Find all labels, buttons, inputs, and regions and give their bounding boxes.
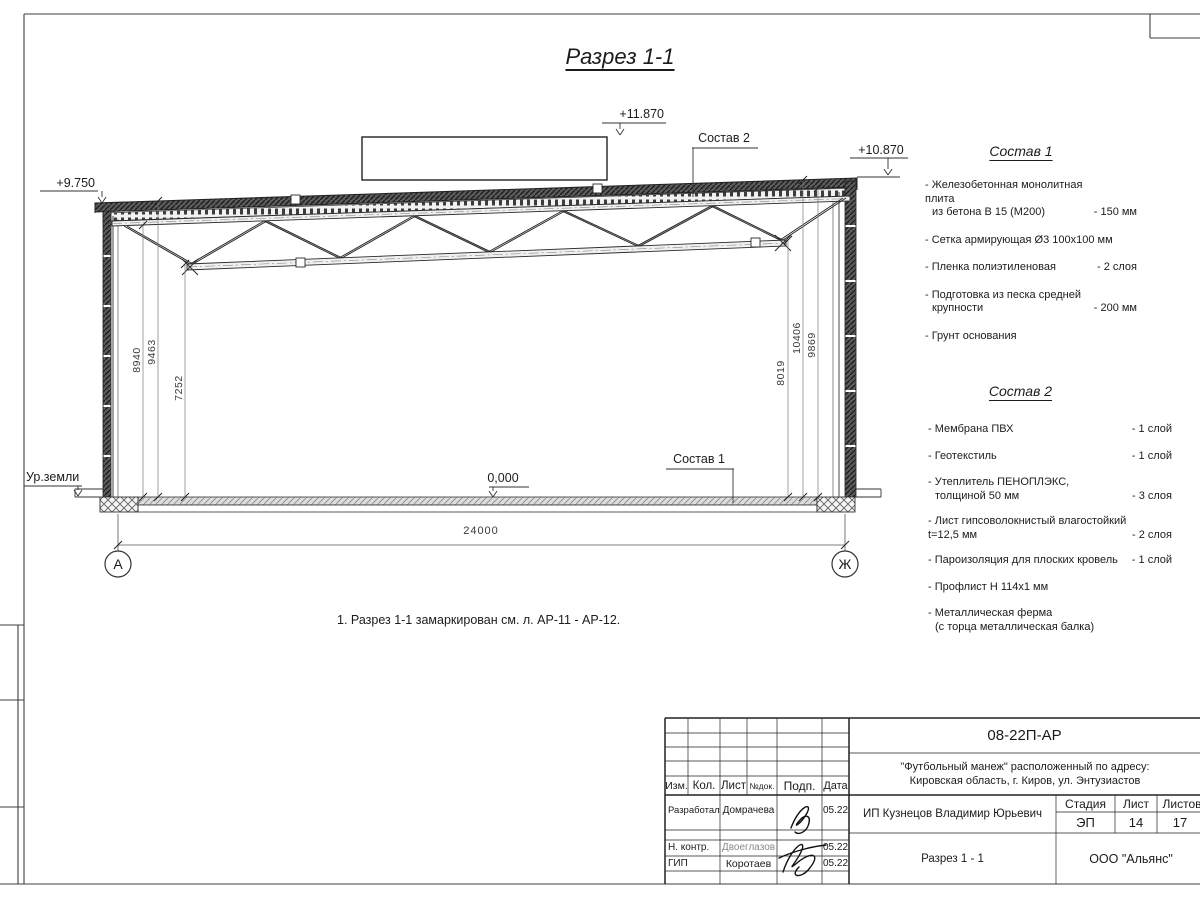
layer-name-2: толщиной 50 мм (928, 490, 1128, 504)
row-date: 05.22 (822, 841, 849, 854)
dim-right-1: 8019 (775, 345, 787, 401)
left-wall (103, 211, 118, 497)
leader-floor-label: Состав 1 (664, 452, 734, 466)
dim-left-2: 9463 (146, 324, 158, 380)
dim-left-1: 8940 (131, 332, 143, 388)
project-line-2: Кировская область, г. Киров, ул. Энтузиа… (910, 774, 1141, 788)
col-izm: Изм. (665, 777, 688, 794)
elevation-right: +10.870 (850, 143, 912, 157)
material-list-1-heading: Состав 1 (925, 143, 1117, 159)
doc-number: 08-22П-АР (849, 720, 1200, 751)
drawing-sheet: Разрез 1-1 +9.750 +11.870 +10.870 0,000 … (0, 0, 1200, 900)
layer-name: - Подготовка из песка средней (925, 289, 1090, 303)
layer-name: - Металлическая ферма (928, 607, 1168, 621)
layer-item: - Профлист Н 114х1 мм (928, 581, 1172, 595)
elevation-zero: 0,000 (478, 471, 528, 485)
material-list-2: Состав 2 - Мембрана ПВХ - 1 слой - Геоте… (928, 383, 1172, 647)
sheet-number: 14 (1115, 812, 1157, 833)
layer-item: - Пароизоляция для плоских кровель - 1 с… (928, 554, 1172, 568)
signature-razrabotal (791, 807, 809, 834)
axis-letter-left: А (105, 551, 131, 577)
layer-item: - Лист гипсоволокнистый влагостойкий t=1… (928, 515, 1172, 542)
ground-level-label: Ур.земли (26, 470, 79, 484)
row-date: 05.22 (822, 804, 849, 817)
elevation-ridge: +11.870 (602, 107, 664, 121)
layer-name: - Утеплитель ПЕНОПЛЭКС, (928, 476, 1128, 490)
right-wall (833, 181, 856, 497)
col-list: Лист (720, 777, 747, 794)
sheets-col: Листов (1157, 795, 1200, 812)
dim-left-3: 7252 (173, 360, 185, 416)
layer-name: - Пленка полиэтиленовая (925, 261, 1093, 275)
dim-right-3: 9869 (806, 317, 818, 373)
layer-value: - 200 мм (1094, 302, 1137, 316)
span-dimension-label: 24000 (448, 525, 514, 537)
row-name: Двоеглазов (720, 841, 777, 854)
layer-item: - Железобетонная монолитная плита из бет… (925, 179, 1137, 220)
layer-value: - 3 слоя (1132, 490, 1172, 504)
row-name: Домрачева (720, 804, 777, 817)
leader-roof-label: Состав 2 (690, 131, 758, 145)
dim-right-2: 10406 (791, 310, 803, 366)
layer-item: - Грунт основания (925, 330, 1137, 344)
layer-name: - Пароизоляция для плоских кровель (928, 554, 1128, 568)
material-list-1: Состав 1 - Железобетонная монолитная пли… (925, 143, 1137, 357)
project-line-1: "Футбольный манеж" расположенный по адре… (900, 760, 1149, 774)
row-name: Коротаев (720, 857, 777, 870)
layer-item: - Утеплитель ПЕНОПЛЭКС, толщиной 50 мм -… (928, 476, 1172, 503)
sheet-title: Разрез 1 - 1 (849, 833, 1056, 884)
page-title: Разрез 1-1 (480, 44, 760, 70)
span-dimension (105, 514, 858, 577)
layer-name: - Профлист Н 114х1 мм (928, 581, 1168, 595)
layer-name: - Геотекстиль (928, 450, 1128, 464)
layer-value: - 1 слой (1132, 423, 1172, 437)
layer-value: - 2 слоя (1097, 261, 1137, 275)
signatures (779, 807, 826, 876)
ground-level (75, 489, 881, 497)
col-ndok: №док. (747, 777, 777, 794)
roof-monitor (362, 137, 607, 180)
material-list-2-heading: Состав 2 (928, 383, 1113, 399)
sheet-col: Лист (1115, 795, 1157, 812)
layer-item: - Мембрана ПВХ - 1 слой (928, 423, 1172, 437)
stage-col: Стадия (1056, 795, 1115, 812)
project-address: "Футбольный манеж" расположенный по адре… (855, 755, 1195, 793)
layer-name: - Железобетонная монолитная плита (925, 179, 1090, 206)
layer-name: - Грунт основания (925, 330, 1133, 344)
col-data: Дата (822, 777, 849, 794)
layer-name-2: (с торца металлическая балка) (928, 621, 1168, 635)
row-role: Разработал (666, 804, 720, 817)
layer-item: - Подготовка из песка средней крупности … (925, 289, 1137, 316)
col-kol: Кол. (688, 777, 720, 794)
layer-item: - Пленка полиэтиленовая - 2 слоя (925, 261, 1137, 275)
row-role: ГИП (666, 857, 720, 870)
layer-name-2: из бетона В 15 (М200) (925, 206, 1090, 220)
layer-name: - Лист гипсоволокнистый влагостойкий (928, 515, 1128, 529)
row-role: Н. контр. (666, 841, 720, 854)
sheets-total: 17 (1157, 812, 1200, 833)
layer-item: - Металлическая ферма (с торца металличе… (928, 607, 1172, 634)
stage-value: ЭП (1056, 812, 1115, 833)
layer-name-2: t=12,5 мм (928, 529, 1128, 543)
layer-value: - 1 слой (1132, 450, 1172, 464)
floor (75, 489, 881, 512)
layer-value: - 150 мм (1094, 206, 1137, 220)
client-name: ИП Кузнецов Владимир Юрьевич (849, 795, 1056, 833)
company-name: ООО "Альянс" (1056, 833, 1200, 884)
layer-item: - Сетка армирующая Ø3 100х100 мм (925, 234, 1137, 248)
layer-name-2: крупности (925, 302, 1090, 316)
layer-name: - Сетка армирующая Ø3 100х100 мм (925, 234, 1133, 248)
layer-value: - 2 слоя (1132, 529, 1172, 543)
elevation-left: +9.750 (38, 176, 95, 190)
layer-item: - Геотекстиль - 1 слой (928, 450, 1172, 464)
layer-name: - Мембрана ПВХ (928, 423, 1128, 437)
axis-letter-right: Ж (832, 551, 858, 577)
layer-value: - 1 слой (1132, 554, 1172, 568)
drawing-note: 1. Разрез 1-1 замаркирован см. л. АР-11 … (337, 613, 620, 627)
row-date: 05.22 (822, 857, 849, 870)
col-podp: Подп. (777, 777, 822, 794)
